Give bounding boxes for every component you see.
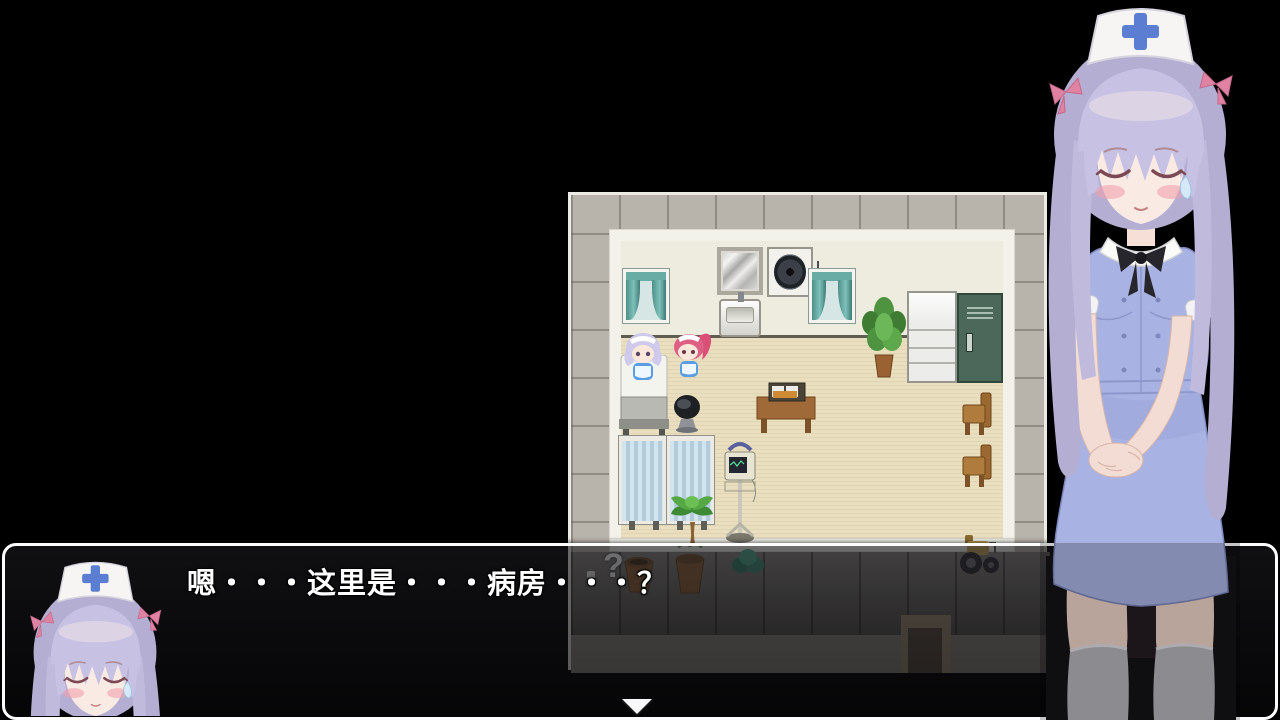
wooden-chair-lower (959, 443, 995, 491)
character-lavender-maid (621, 329, 665, 387)
privacy-screen-left (619, 436, 666, 524)
meal-table (755, 381, 817, 435)
game-screen: { "dialogue": { "text": "嗯・・・这里是・・・病房・・・… (0, 0, 1280, 720)
black-stool (671, 393, 703, 433)
green-locker (957, 293, 1003, 383)
wall-mirror (717, 247, 763, 295)
nurse-standing-portrait (1040, 0, 1240, 720)
message-continue-icon[interactable] (622, 699, 652, 714)
exhaust-fan (767, 247, 813, 297)
curtained-window-right (809, 269, 855, 323)
medical-monitor-stand (721, 438, 759, 544)
curtained-window-left (623, 269, 669, 323)
sink (719, 299, 761, 337)
wooden-chair-upper (959, 391, 995, 439)
potted-palm (669, 488, 715, 546)
character-pink-maid (669, 327, 713, 385)
dialog-speaker-portrait (25, 556, 165, 716)
dialog-text: 嗯・・・这里是・・・病房・・・？ (187, 560, 667, 602)
refrigerator (907, 291, 957, 383)
tall-potted-plant (861, 293, 907, 381)
